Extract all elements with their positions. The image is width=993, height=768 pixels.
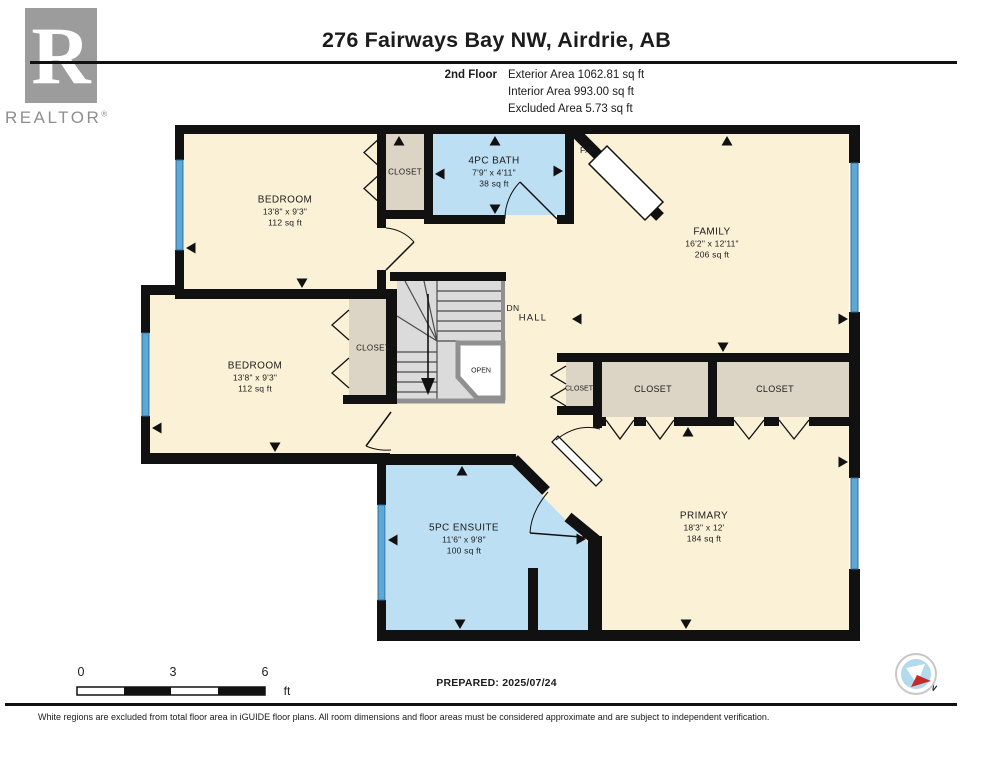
wall-bed-divider: [175, 289, 397, 299]
open-label: OPEN: [471, 368, 491, 375]
wall-ensuite-top: [377, 454, 516, 465]
window-family: [851, 163, 858, 312]
closet-small-floor: [566, 362, 593, 406]
closet2-label: CLOSET: [356, 344, 390, 353]
wall-bath-bottom-a: [424, 215, 505, 224]
scale-bar: [77, 687, 265, 695]
wall-toilet-stub: [528, 568, 538, 632]
closet-mid-label: CLOSET: [634, 384, 672, 394]
closet-right-label: CLOSET: [756, 384, 794, 394]
bedroom1-label: BEDROOM 13'8" x 9'3" 112 sq ft: [258, 195, 312, 228]
window-bedroom1: [176, 160, 183, 250]
compass: [896, 654, 936, 694]
family-label: FAMILY 16'2" x 12'11" 206 sq ft: [685, 227, 739, 260]
wall-closet2-bottom: [343, 395, 397, 404]
bedroom2-label: BEDROOM 13'8" x 9'3" 112 sq ft: [228, 361, 282, 394]
wall-stairs-top: [390, 272, 506, 281]
wall-smallcloset-bottom: [557, 406, 602, 415]
wall-primary-left: [588, 536, 602, 639]
closet-small-label: CLOSET: [565, 386, 593, 393]
window-primary: [851, 478, 858, 569]
wall-top: [175, 125, 860, 134]
wall-bottom: [377, 630, 860, 641]
floorplan-page: R REALTOR® 276 Fairways Bay NW, Airdrie,…: [0, 0, 993, 768]
closet1-label: CLOSET: [388, 168, 422, 177]
wall-smallcloset-right: [593, 353, 602, 428]
fireplace-label: F/P: [580, 145, 594, 155]
staircase: [390, 281, 505, 403]
wall-bed1-right-b: [377, 270, 386, 299]
dn-label: DN: [507, 303, 520, 313]
window-ensuite: [378, 505, 385, 600]
floorplan-drawing: [0, 0, 993, 768]
bath-label: 4PC BATH 7'9" x 4'11" 38 sq ft: [468, 156, 519, 189]
primary-label: PRIMARY 18'3" x 12' 184 sq ft: [680, 511, 728, 544]
wall-bath-right: [565, 125, 574, 224]
ensuite-label: 5PC ENSUITE 11'6" x 9'8" 100 sq ft: [429, 523, 499, 556]
wall-bed2-bottom: [141, 453, 390, 464]
hall-label: HALL: [519, 313, 548, 324]
wall-bath-left: [424, 125, 433, 224]
wall-closet-divider: [708, 353, 717, 426]
wall-bath-bottom-b: [557, 215, 569, 224]
window-bedroom2: [142, 333, 149, 416]
